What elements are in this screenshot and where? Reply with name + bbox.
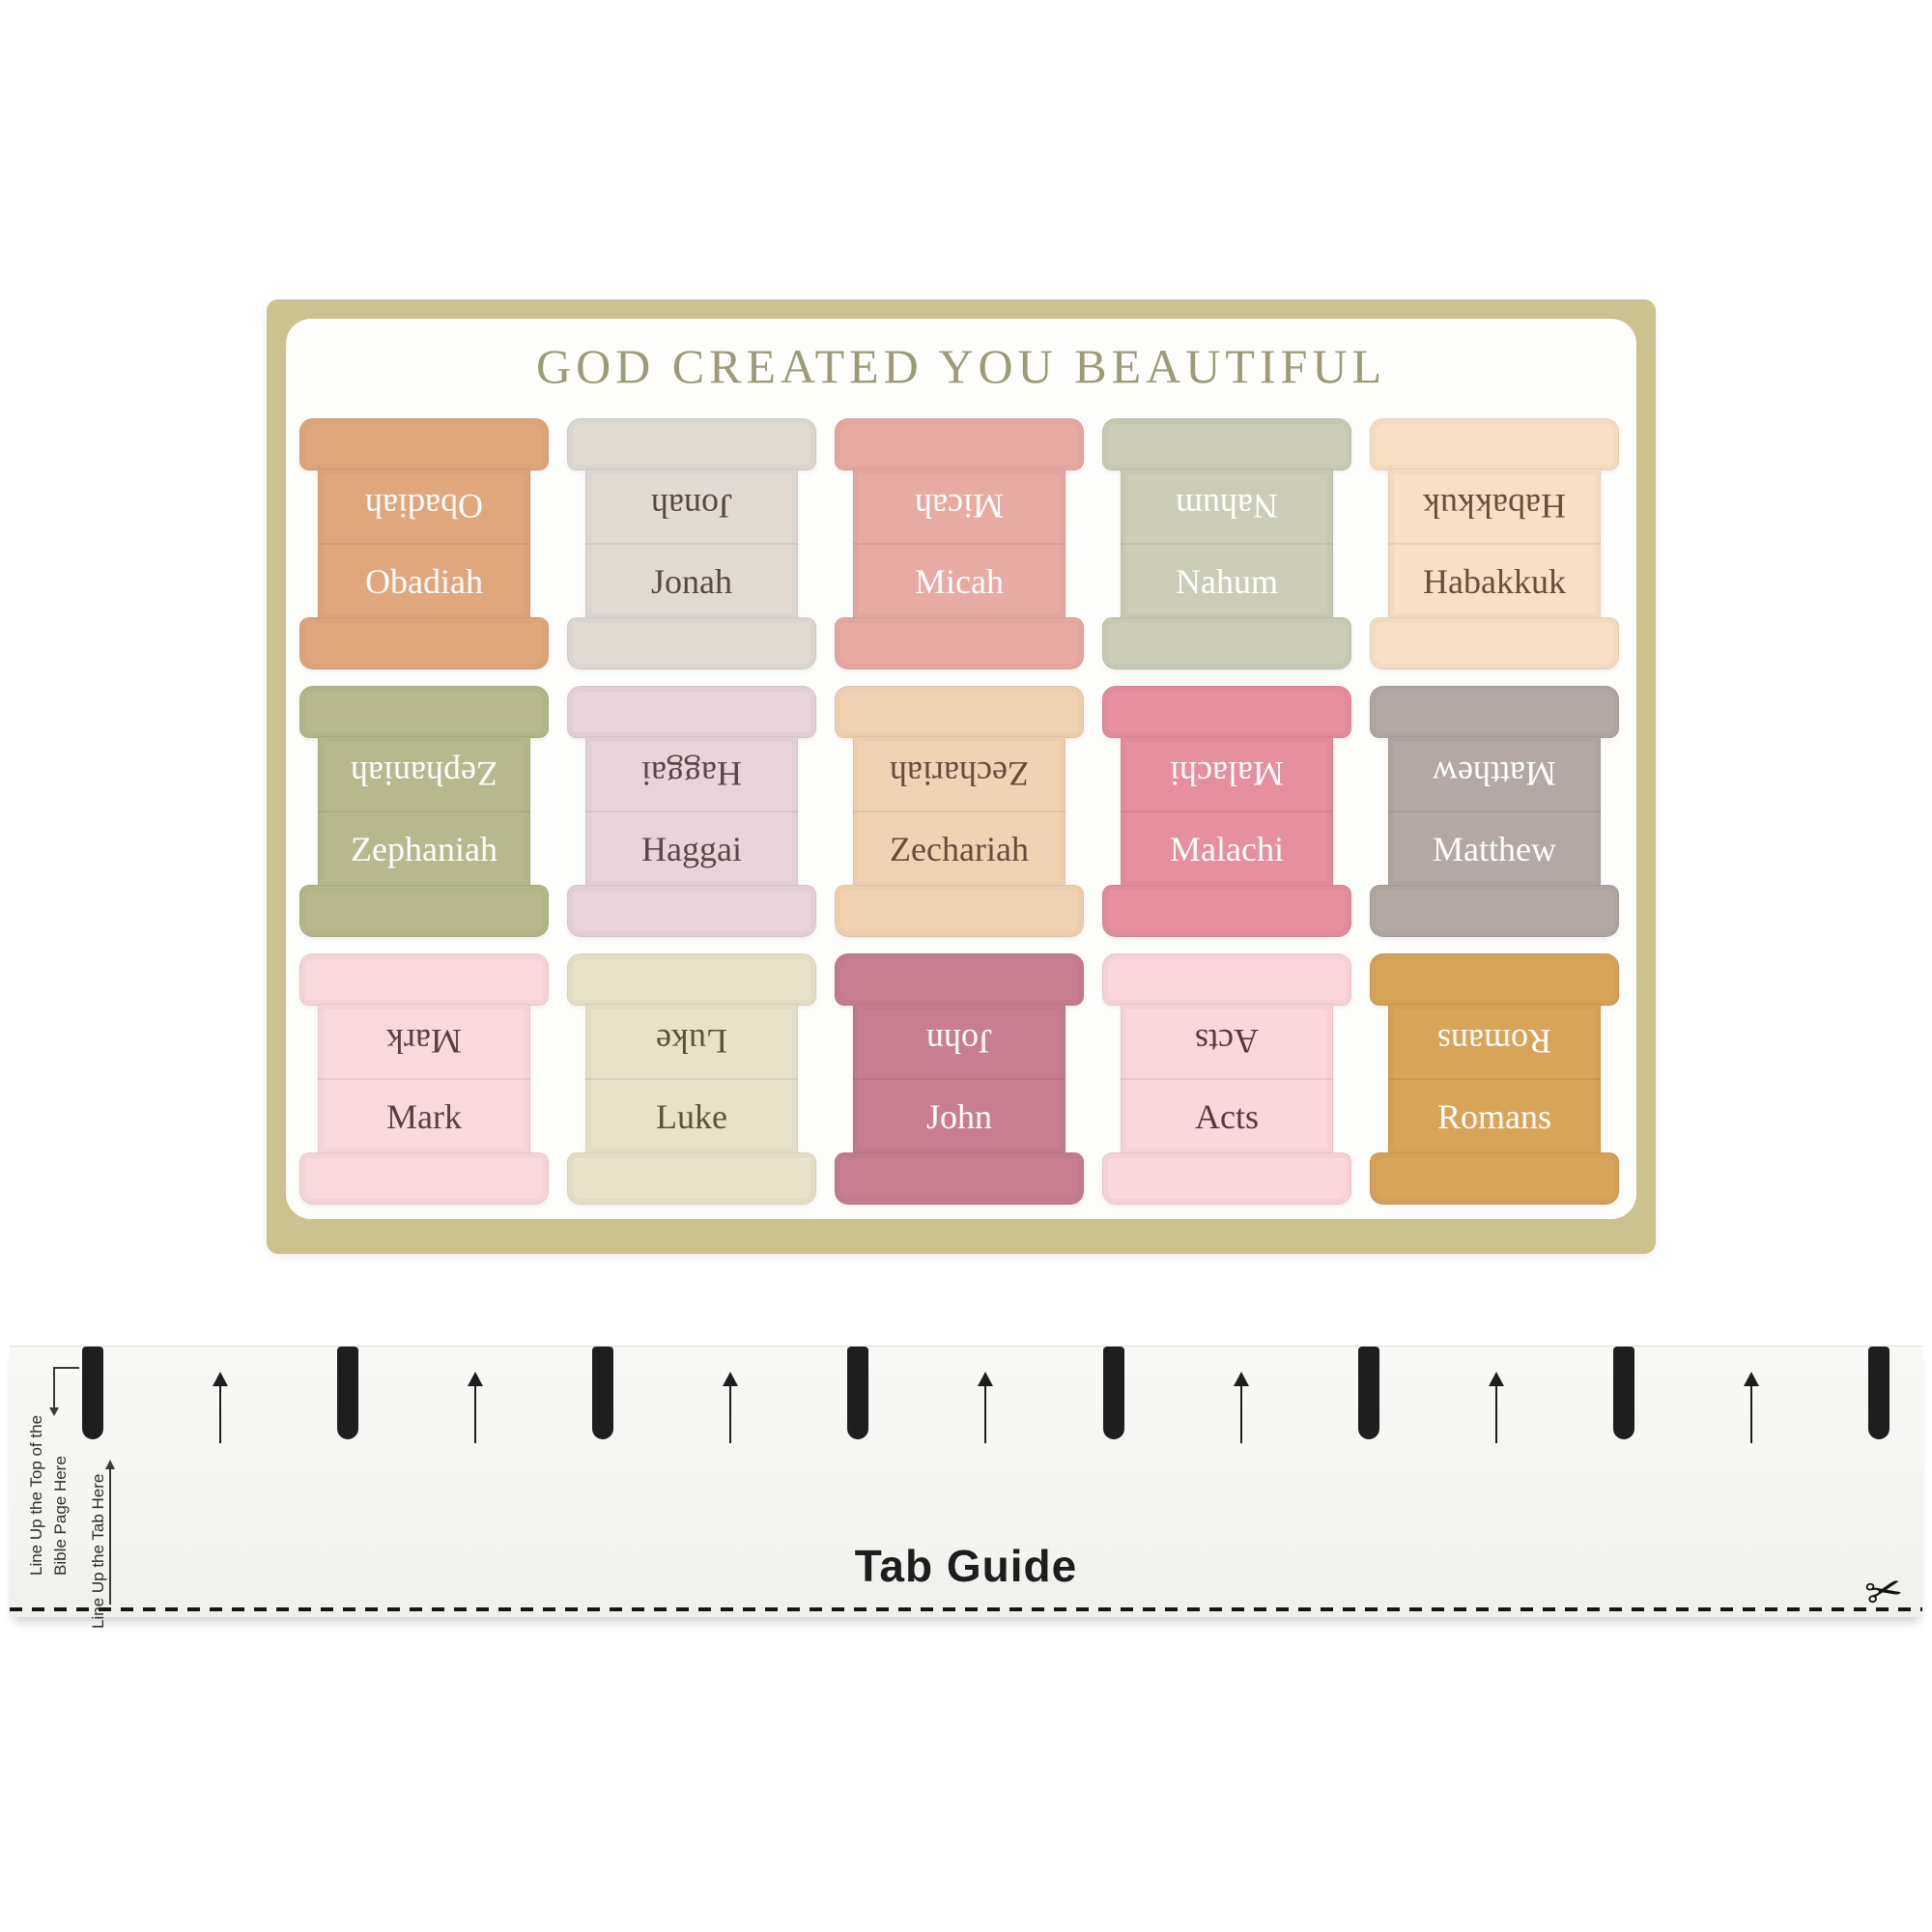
bible-tab-malachi: Malachi Malachi <box>1102 686 1351 937</box>
tab-top-section <box>567 953 816 1006</box>
guide-arrow-icon <box>1234 1372 1249 1443</box>
tab-bottom-section <box>835 1152 1084 1205</box>
guide-bar <box>592 1347 613 1439</box>
leader-line <box>53 1367 55 1407</box>
bible-tab-matthew: Matthew Matthew <box>1370 686 1619 937</box>
tab-top-section <box>299 686 549 738</box>
tab-top-section <box>835 686 1084 738</box>
up-arrow-line <box>109 1469 111 1605</box>
tab-label: Micah <box>854 544 1065 619</box>
tab-label-flipped: Haggai <box>586 736 797 811</box>
up-arrow-icon <box>105 1460 115 1469</box>
tab-label-flipped: Luke <box>586 1004 797 1079</box>
tab-bottom-section <box>1370 617 1619 669</box>
tab-guide-title: Tab Guide <box>855 1540 1078 1592</box>
bible-tab-acts: Acts Acts <box>1102 953 1351 1205</box>
guide-bar <box>1358 1347 1379 1439</box>
tab-label: Romans <box>1389 1079 1600 1154</box>
product-photo: GOD CREATED YOU BEAUTIFUL Obadiah Obadia… <box>0 0 1932 1932</box>
tab-label-flipped: Mark <box>319 1004 529 1079</box>
bible-tab-habakkuk: Habakkuk Habakkuk <box>1370 418 1619 669</box>
guide-bar <box>1103 1347 1124 1439</box>
guide-note-tab-here: Line Up the Tab Here <box>86 1464 107 1629</box>
tab-top-section <box>567 686 816 738</box>
tab-bottom-section <box>1370 885 1619 937</box>
tab-top-section <box>835 953 1084 1006</box>
tab-label: Obadiah <box>319 544 529 619</box>
tab-label: Habakkuk <box>1389 544 1600 619</box>
tab-bottom-section <box>1370 1152 1619 1205</box>
bible-tab-nahum: Nahum Nahum <box>1102 418 1351 669</box>
tab-label-flipped: Romans <box>1389 1004 1600 1079</box>
tab-label-flipped: Zechariah <box>854 736 1065 811</box>
tab-label-flipped: Acts <box>1122 1004 1332 1079</box>
tab-label: Haggai <box>586 811 797 887</box>
guide-note-line2: Bible Page Here <box>48 1373 72 1576</box>
tab-top-section <box>1102 953 1351 1006</box>
tab-bottom-section <box>567 1152 816 1205</box>
bible-tab-obadiah: Obadiah Obadiah <box>299 418 549 669</box>
bible-tab-micah: Micah Micah <box>835 418 1084 669</box>
tab-bottom-section <box>1102 617 1351 669</box>
guide-bar <box>82 1347 103 1439</box>
guide-arrow-icon <box>1744 1372 1759 1443</box>
bible-tab-haggai: Haggai Haggai <box>567 686 816 937</box>
guide-bar <box>337 1347 358 1439</box>
tab-label: Nahum <box>1122 544 1332 619</box>
guide-arrow-icon <box>1489 1372 1504 1443</box>
tab-label-flipped: John <box>854 1004 1065 1079</box>
tab-label-flipped: Matthew <box>1389 736 1600 811</box>
tab-label: Zephaniah <box>319 811 529 887</box>
tab-label: Acts <box>1122 1079 1332 1154</box>
guide-arrow-icon <box>978 1372 993 1443</box>
tab-top-section <box>1370 953 1619 1006</box>
tab-top-section <box>299 418 549 470</box>
tab-top-section <box>299 953 549 1006</box>
tab-bottom-section <box>1102 1152 1351 1205</box>
guide-note-line1: Line Up the Top of the <box>24 1373 48 1576</box>
bible-tab-mark: Mark Mark <box>299 953 549 1205</box>
tab-bottom-section <box>299 885 549 937</box>
bible-tab-luke: Luke Luke <box>567 953 816 1205</box>
tab-label-flipped: Habakkuk <box>1389 469 1600 544</box>
tab-top-section <box>1102 686 1351 738</box>
guide-arrow-icon <box>213 1372 228 1443</box>
tab-bottom-section <box>835 885 1084 937</box>
tab-label-flipped: Nahum <box>1122 469 1332 544</box>
tab-bottom-section <box>567 617 816 669</box>
scissors-icon: ✂ <box>1861 1565 1907 1616</box>
tab-top-section <box>1370 686 1619 738</box>
sticker-sheet: GOD CREATED YOU BEAUTIFUL Obadiah Obadia… <box>267 299 1656 1254</box>
tab-label-flipped: Jonah <box>586 469 797 544</box>
leader-line <box>53 1367 79 1369</box>
tab-label: Malachi <box>1122 811 1332 887</box>
guide-note-bible-page: Line Up the Top of the Bible Page Here <box>23 1373 73 1576</box>
tab-top-section <box>835 418 1084 470</box>
guide-bar <box>1868 1347 1889 1439</box>
guide-bar <box>1613 1347 1634 1439</box>
sheet-title: GOD CREATED YOU BEAUTIFUL <box>267 338 1656 394</box>
tab-label: John <box>854 1079 1065 1154</box>
tab-label-flipped: Zephaniah <box>319 736 529 811</box>
tab-label-flipped: Obadiah <box>319 469 529 544</box>
tab-bottom-section <box>299 1152 549 1205</box>
tab-top-section <box>1370 418 1619 470</box>
tab-bottom-section <box>1102 885 1351 937</box>
bible-tab-romans: Romans Romans <box>1370 953 1619 1205</box>
cut-line <box>10 1607 1922 1611</box>
tab-bottom-section <box>299 617 549 669</box>
tab-top-section <box>1102 418 1351 470</box>
tab-label: Mark <box>319 1079 529 1154</box>
tab-label-flipped: Micah <box>854 469 1065 544</box>
tab-label: Zechariah <box>854 811 1065 887</box>
bible-tab-zechariah: Zechariah Zechariah <box>835 686 1084 937</box>
bible-tab-zephaniah: Zephaniah Zephaniah <box>299 686 549 937</box>
tab-label-flipped: Malachi <box>1122 736 1332 811</box>
down-arrow-icon <box>49 1407 59 1416</box>
tab-bottom-section <box>835 617 1084 669</box>
tabs-grid: Obadiah Obadiah Jonah Jonah Micah Micah … <box>299 418 1619 1205</box>
guide-arrow-icon <box>468 1372 483 1443</box>
tab-top-section <box>567 418 816 470</box>
tab-label: Matthew <box>1389 811 1600 887</box>
guide-bar <box>847 1347 868 1439</box>
bible-tab-jonah: Jonah Jonah <box>567 418 816 669</box>
tab-guide-strip: Line Up the Top of the Bible Page Here L… <box>10 1346 1922 1617</box>
bible-tab-john: John John <box>835 953 1084 1205</box>
guide-arrow-icon <box>723 1372 738 1443</box>
tab-label: Jonah <box>586 544 797 619</box>
tab-bottom-section <box>567 885 816 937</box>
tab-label: Luke <box>586 1079 797 1154</box>
